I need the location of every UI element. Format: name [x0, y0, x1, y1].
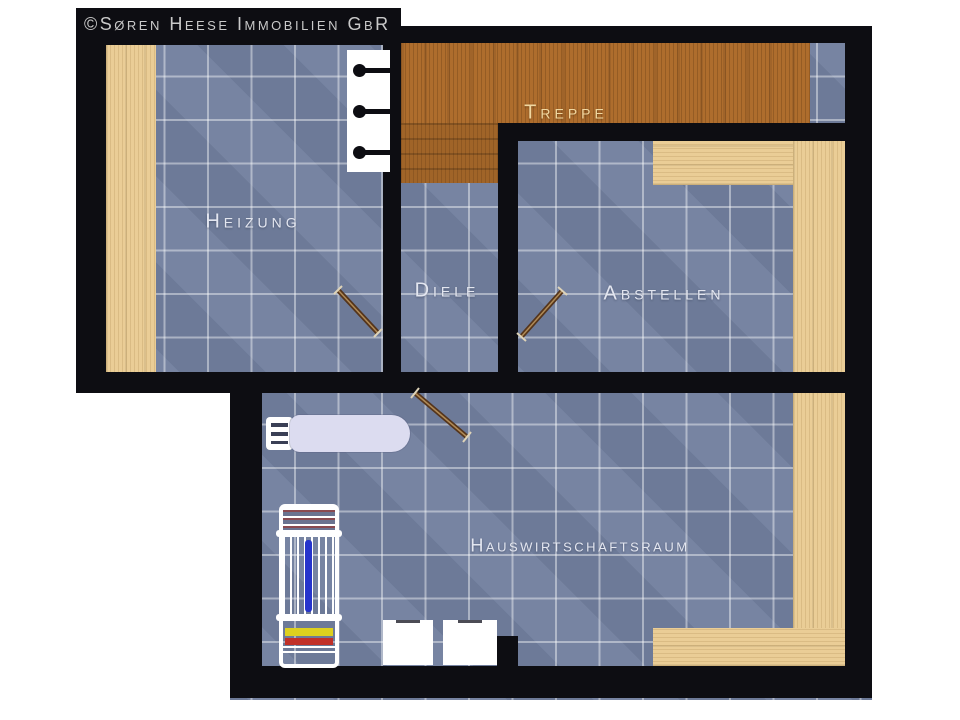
room-label-hauswirtschaftsraum: Hauswirtschaftsraum — [470, 536, 689, 557]
stair-treads — [401, 123, 498, 183]
room-label-diele: Diele — [415, 280, 480, 303]
wall-middle-horizontal — [76, 372, 872, 393]
room-label-treppe: Treppe — [524, 102, 608, 125]
page-background — [0, 392, 230, 720]
room-label-heizung: Heizung — [205, 211, 300, 234]
wall-top-right — [401, 26, 872, 43]
radiator-valve-icon — [353, 64, 390, 78]
washer-icon — [383, 620, 433, 665]
floor-plan: ©Søren Heese Immobilien GbR Heizung Trep… — [0, 0, 960, 720]
drying-rack-bottom — [283, 646, 335, 656]
wall-hauswirtschaftsraum-left — [230, 390, 262, 698]
wood-floor-hauswirtschaftsraum-bottom — [653, 628, 845, 666]
page-background — [401, 0, 960, 26]
radiator-valve-icon — [353, 146, 390, 160]
radiator-icon — [347, 50, 390, 172]
wall-bottom — [230, 666, 872, 698]
drying-rack-yellow-bar — [285, 628, 333, 636]
dryer-icon — [443, 620, 497, 665]
drying-rack-top — [283, 508, 335, 532]
ironing-board-icon — [290, 415, 410, 452]
drying-rack-crossbar — [276, 530, 342, 537]
wood-floor-abstellen-right — [793, 141, 845, 373]
wall-diele-abstellen — [498, 123, 518, 393]
drying-rack-icon — [279, 504, 339, 668]
drying-rack-crossbar — [276, 614, 342, 621]
wall-stub — [497, 636, 518, 668]
wood-floor-heizung-left — [106, 45, 156, 372]
drying-rack-blue-bar — [305, 540, 312, 612]
wall-left — [76, 8, 106, 392]
wall-treppe-abstellen — [498, 123, 845, 141]
radiator-valve-icon — [353, 105, 390, 119]
copyright-text: ©Søren Heese Immobilien GbR — [84, 14, 391, 35]
iron-rest-icon — [266, 417, 293, 450]
wall-right — [845, 26, 872, 698]
room-label-abstellen: Abstellen — [604, 283, 725, 306]
drying-rack-red-bar — [285, 638, 333, 645]
wood-floor-hauswirtschaftsraum-right — [793, 393, 845, 666]
